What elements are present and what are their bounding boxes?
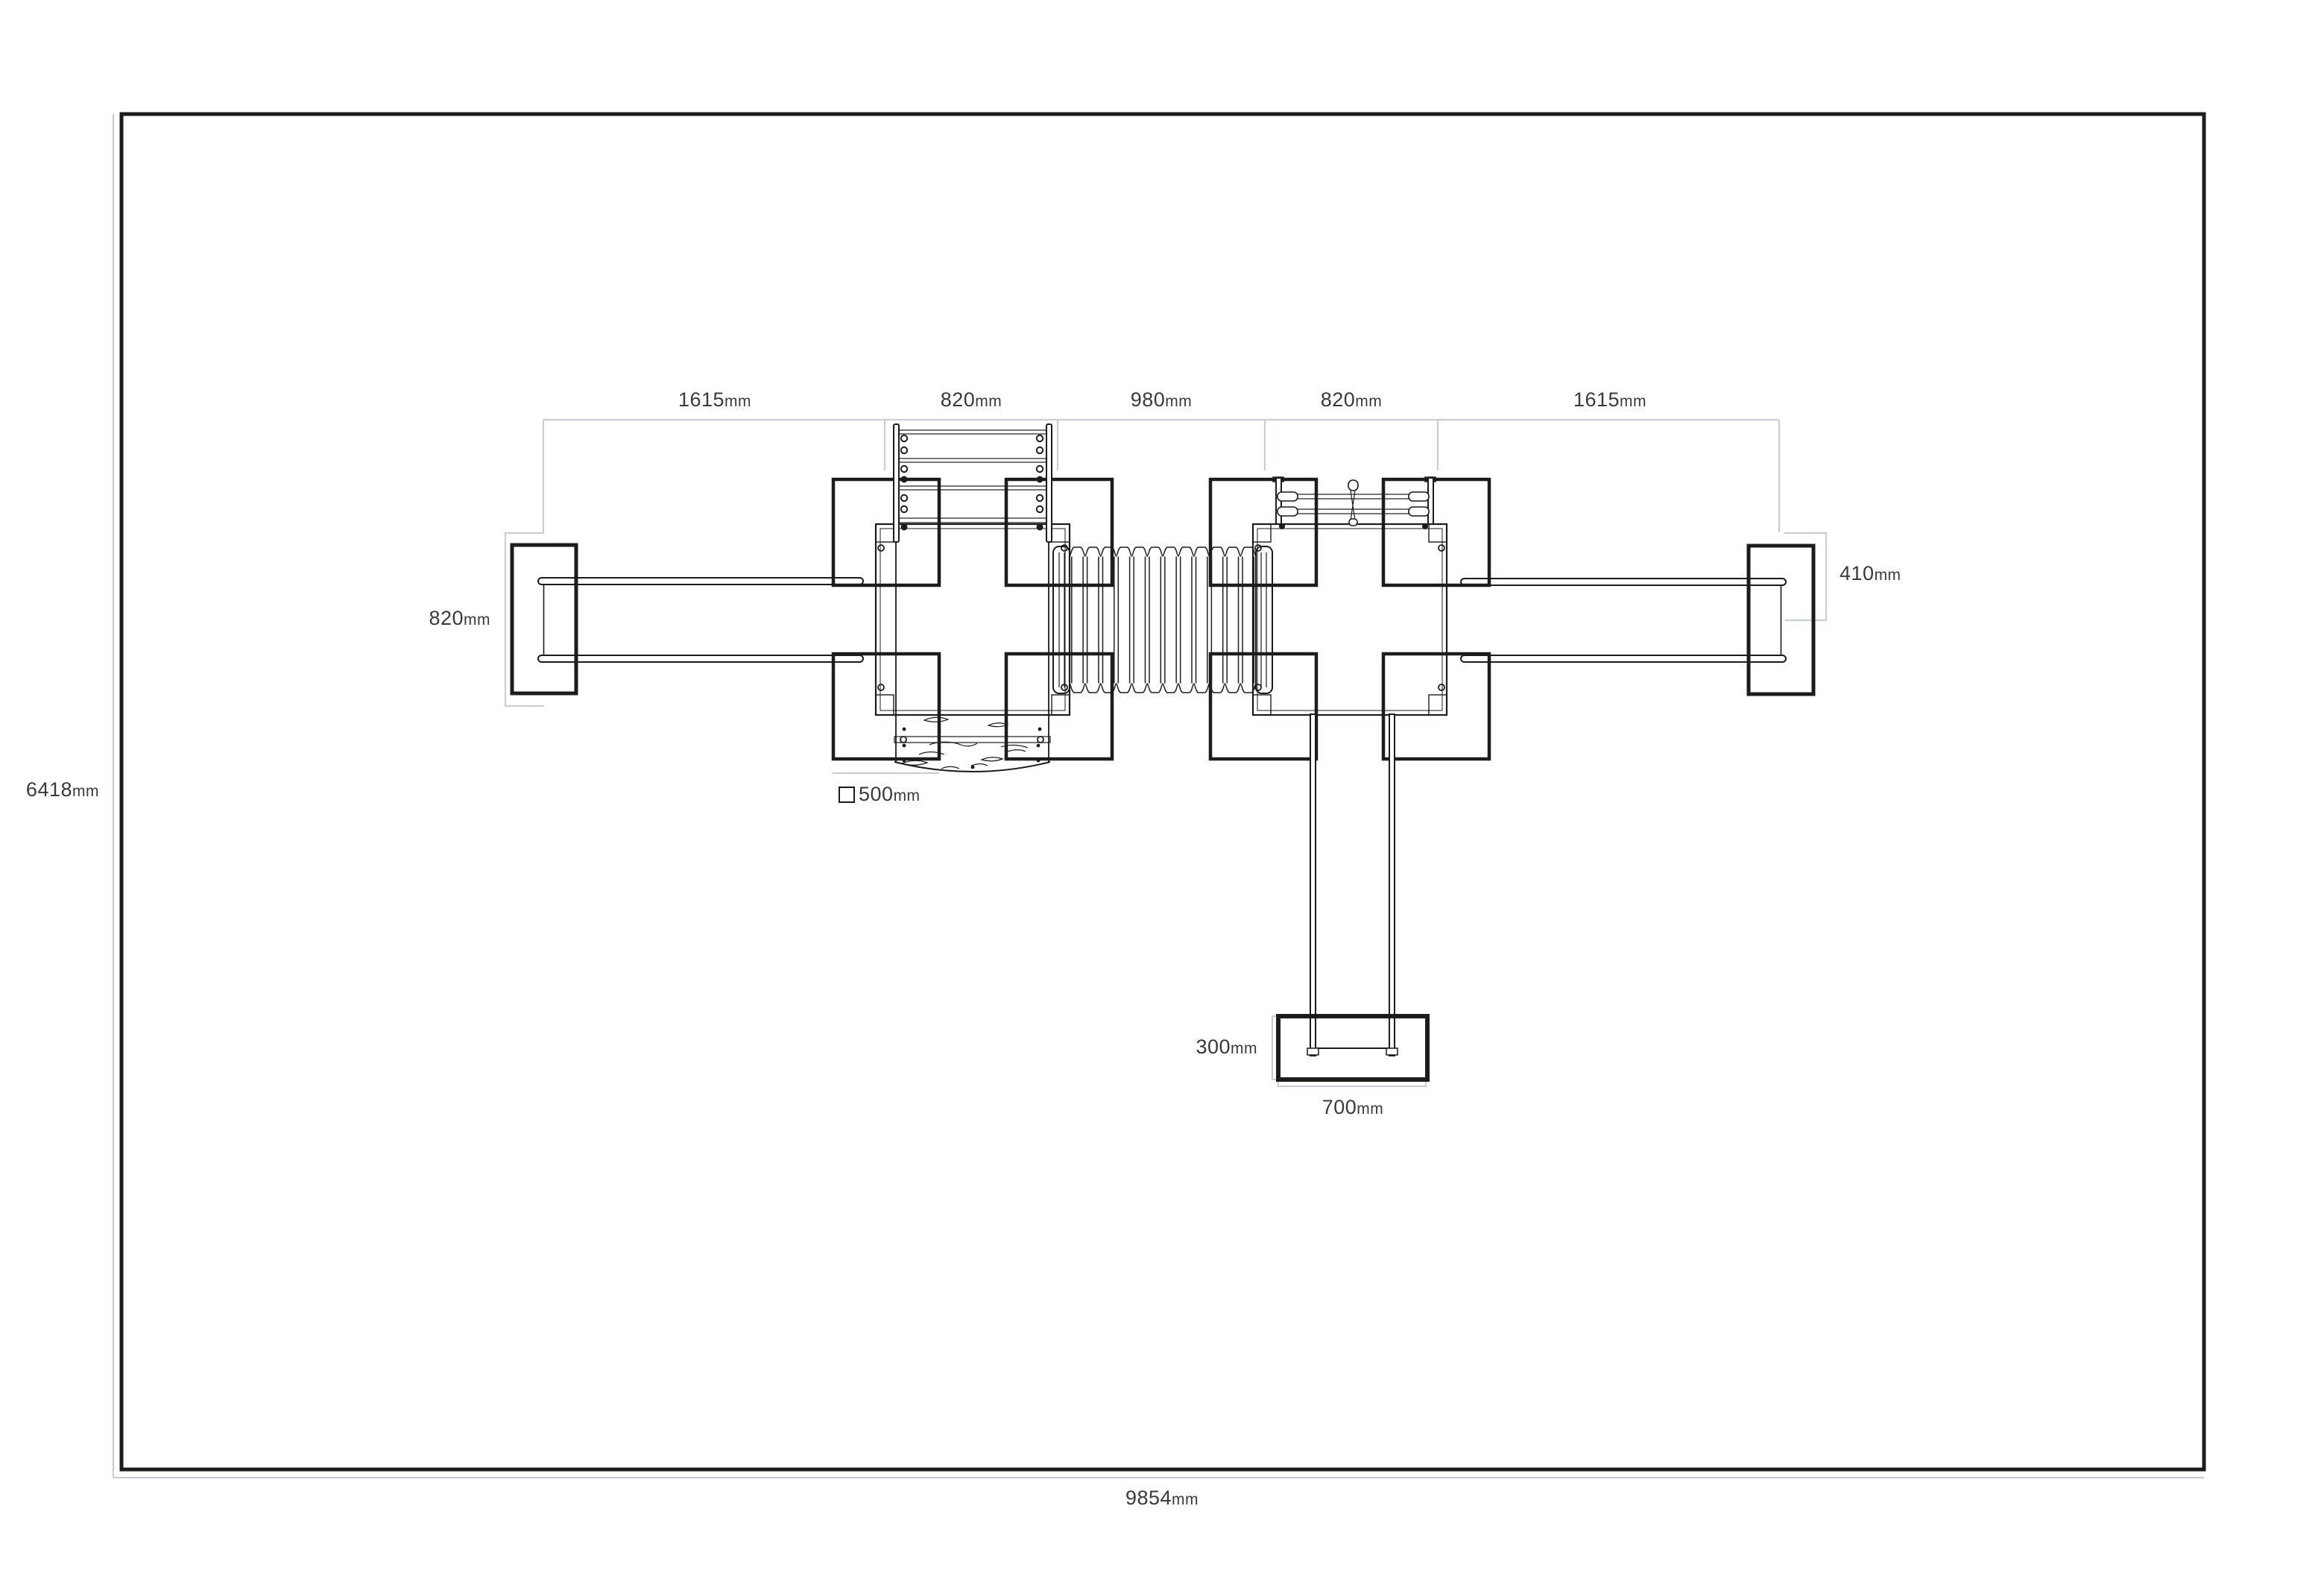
ramp-dots — [903, 728, 1042, 769]
right-rail-bottom — [1461, 655, 1786, 662]
dim-monkey-bar-820: 820mm — [429, 607, 490, 630]
tunnel-end-ring-right — [1256, 546, 1272, 693]
dim-right-rail-410: 410mm — [1840, 562, 1901, 585]
tunnel-end-ring-left — [1053, 546, 1070, 693]
border-frame — [121, 114, 2204, 1469]
slide-right — [1278, 714, 1427, 1080]
slide-rail-right — [1389, 714, 1395, 1056]
dim-overall-6418: 6418mm — [26, 778, 99, 801]
dim-slide-300: 300mm — [1196, 1036, 1257, 1059]
monkey-bar-rail-top — [538, 578, 863, 584]
monkey-bar-rail-bottom — [538, 655, 863, 662]
post-square — [833, 654, 939, 759]
climbing-bars — [1273, 477, 1436, 526]
platform-outline — [876, 524, 1070, 715]
dim-top-980: 980mm — [1131, 388, 1193, 412]
plan-drawing — [0, 0, 2324, 1585]
post-square — [833, 479, 939, 585]
dim-top-1615-right: 1615mm — [1573, 388, 1646, 412]
drawing-sheet: 1615mm 820mm 980mm 820mm 1615mm 820mm 41… — [0, 0, 2324, 1585]
post-size-legend-label: 500mm — [859, 783, 921, 806]
wood-grain — [902, 717, 1028, 769]
dim-top-1615-left: 1615mm — [678, 388, 751, 412]
slide-rail-left — [1310, 714, 1316, 1056]
ladder-bolts — [901, 435, 1043, 530]
post-square — [1383, 654, 1489, 759]
platform-outline — [1253, 524, 1447, 715]
dim-slide-700: 700mm — [1322, 1096, 1384, 1119]
post-square — [1383, 479, 1489, 585]
dim-top-820-right: 820mm — [1321, 388, 1383, 412]
right-tower — [1210, 477, 1489, 759]
post-size-legend-icon — [839, 787, 855, 803]
rail-extension-right — [1461, 546, 1813, 694]
dim-overall-9854: 9854mm — [1125, 1487, 1199, 1510]
dim-top-820-left: 820mm — [941, 388, 1002, 412]
left-tower — [833, 424, 1112, 772]
crawl-tunnel — [1053, 546, 1272, 693]
monkey-bars-left — [512, 545, 863, 693]
wavy-ramp — [894, 717, 1050, 772]
tunnel-corrugation — [1070, 546, 1256, 693]
dimension-lines — [113, 114, 2204, 1478]
right-rail-top — [1461, 579, 1786, 585]
